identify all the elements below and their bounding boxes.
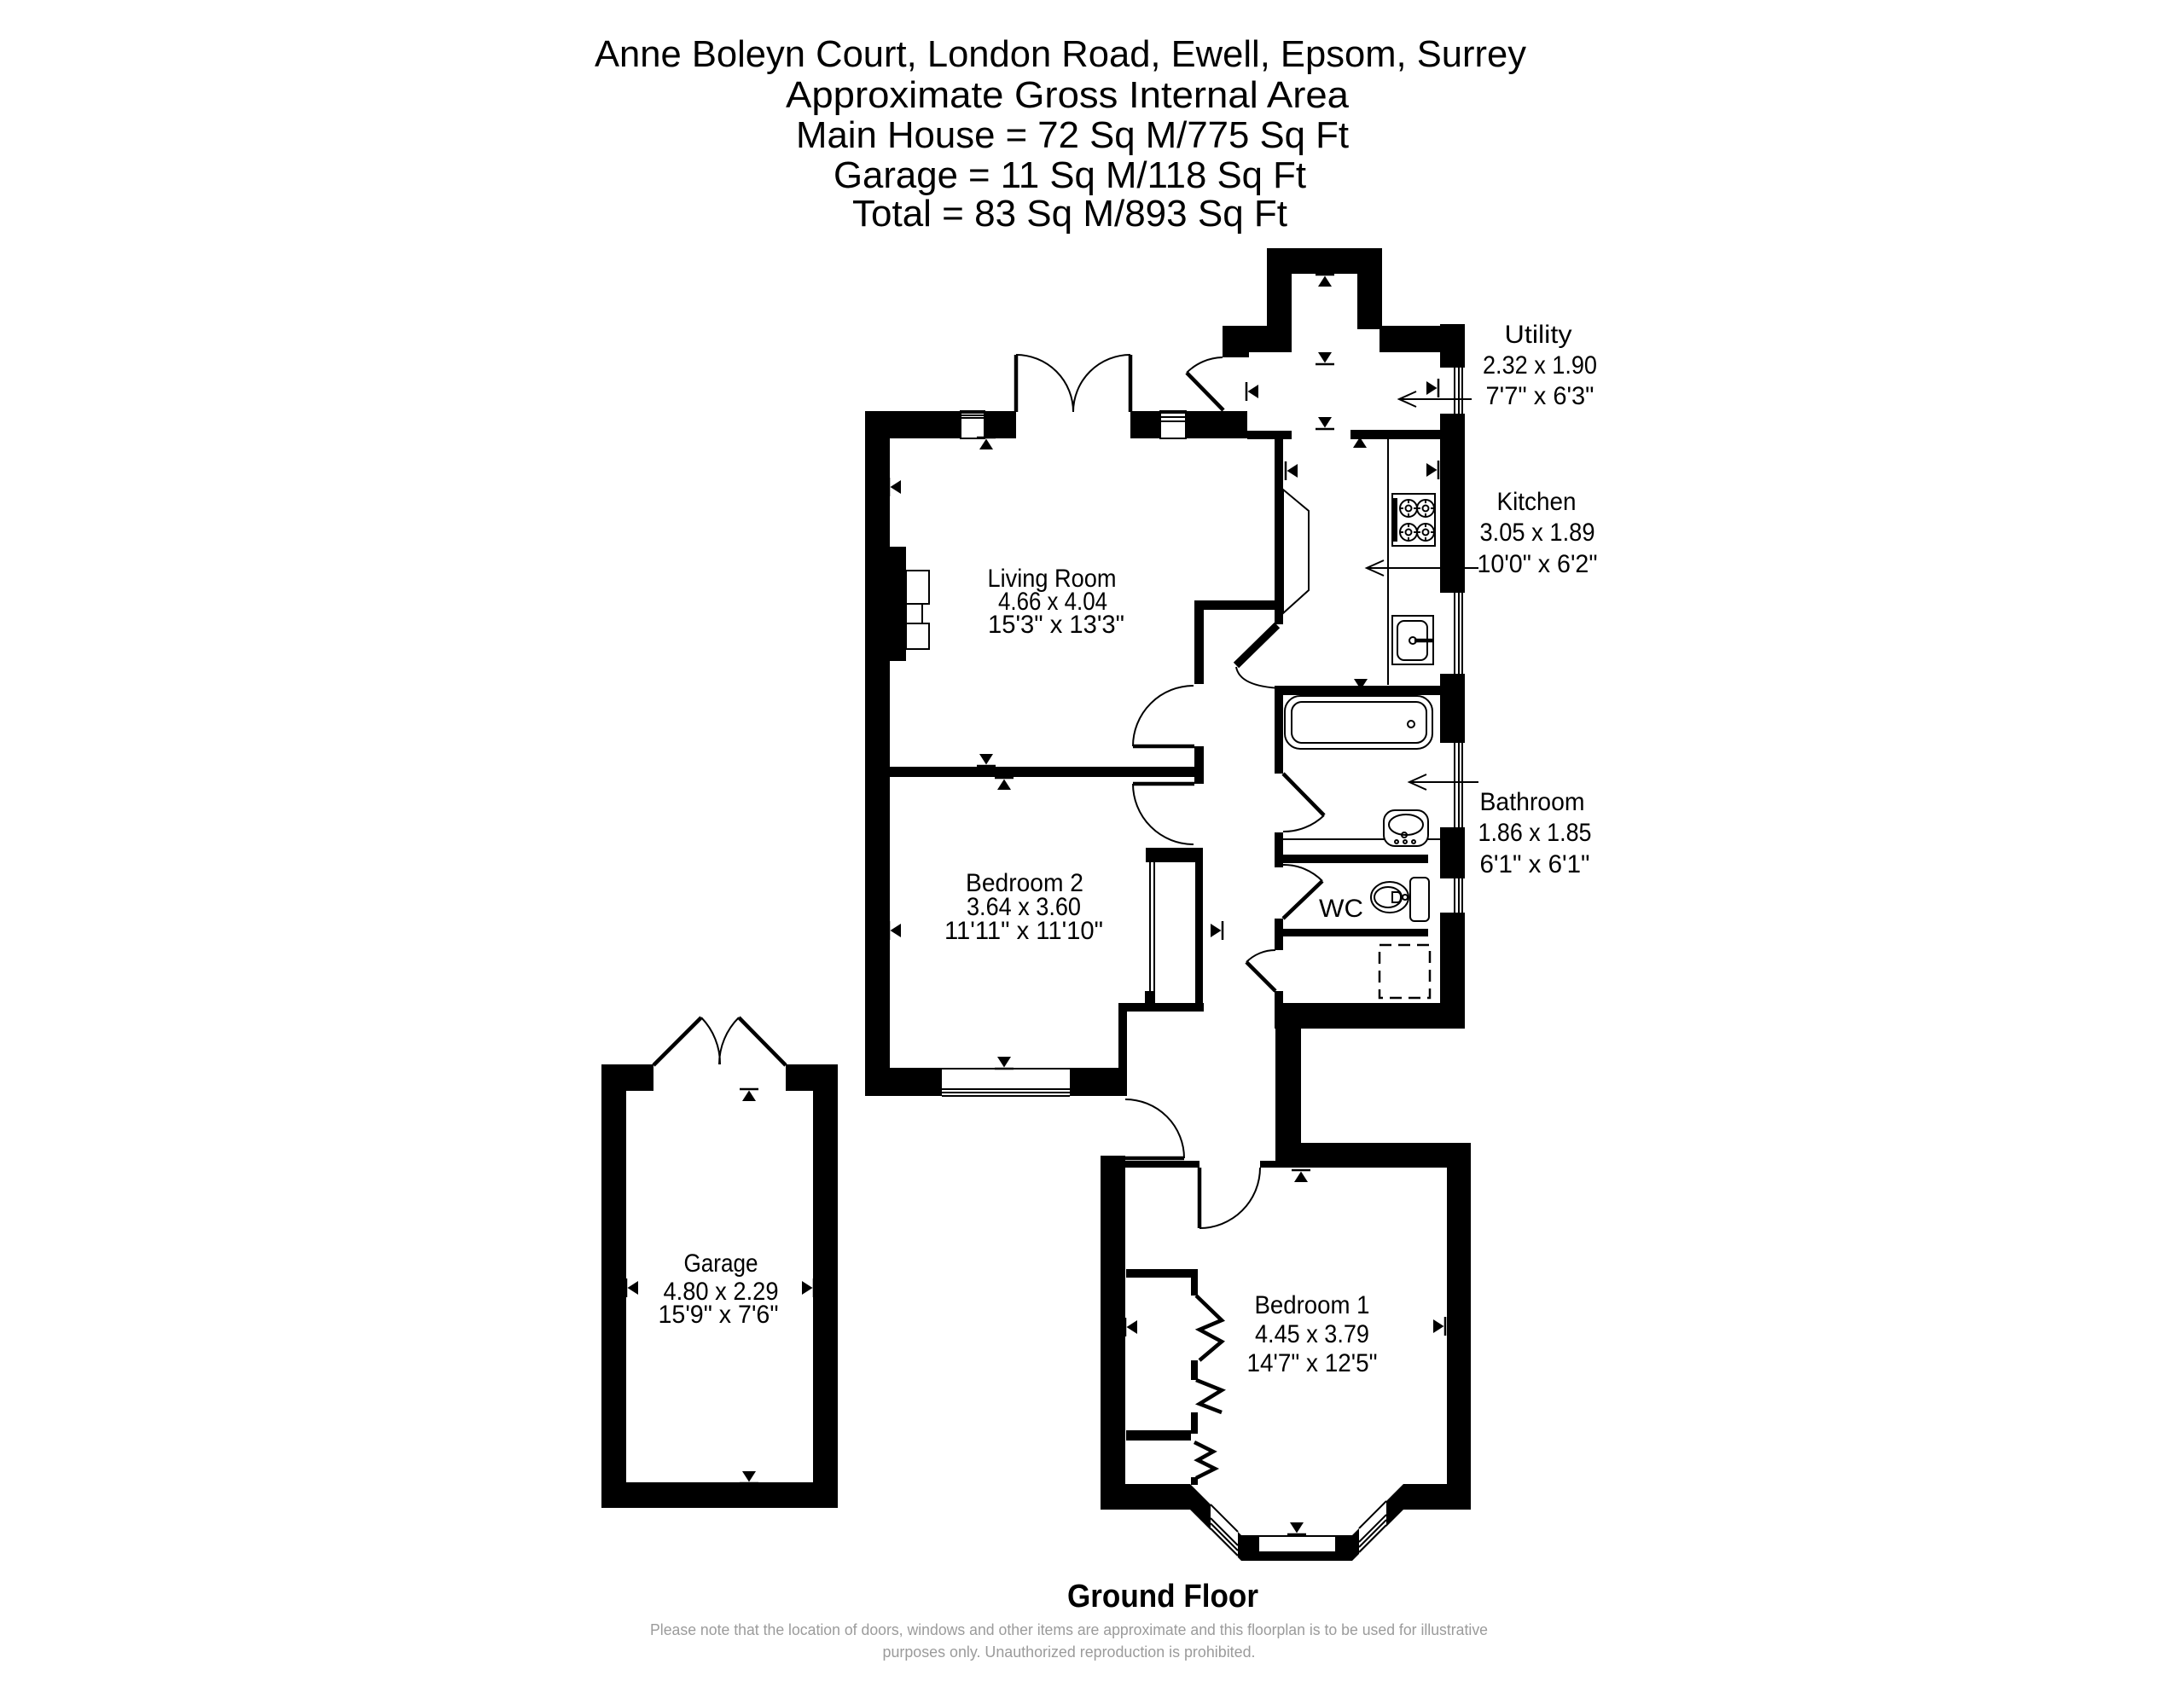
svg-text:7'7" x 6'3": 7'7" x 6'3" [1486,382,1594,410]
svg-text:Garage: Garage [684,1249,758,1278]
svg-text:Please note that the location: Please note that the location of doors, … [650,1621,1488,1638]
svg-text:15'3" x 13'3": 15'3" x 13'3" [988,611,1124,639]
svg-text:Kitchen: Kitchen [1497,488,1577,516]
svg-text:15'9" x 7'6": 15'9" x 7'6" [659,1301,779,1329]
svg-text:Total = 83 Sq M/893 Sq Ft: Total = 83 Sq M/893 Sq Ft [852,193,1287,235]
svg-text:1.86 x 1.85: 1.86 x 1.85 [1478,819,1592,847]
svg-text:Main House = 72 Sq M/775 Sq Ft: Main House = 72 Sq M/775 Sq Ft [796,114,1349,156]
svg-text:Anne Boleyn Court, London Road: Anne Boleyn Court, London Road, Ewell, E… [595,33,1526,75]
svg-text:Approximate Gross Internal Are: Approximate Gross Internal Area [786,74,1350,116]
svg-text:Ground Floor: Ground Floor [1067,1579,1258,1615]
svg-text:purposes only. Unauthorized re: purposes only. Unauthorized reproduction… [883,1644,1256,1661]
svg-text:4.45 x 3.79: 4.45 x 3.79 [1255,1320,1369,1348]
svg-text:2.32 x 1.90: 2.32 x 1.90 [1483,351,1597,380]
svg-text:11'11" x 11'10": 11'11" x 11'10" [944,917,1103,945]
svg-text:Utility: Utility [1505,321,1572,349]
svg-text:14'7" x 12'5": 14'7" x 12'5" [1247,1349,1378,1377]
svg-text:3.05 x 1.89: 3.05 x 1.89 [1480,519,1595,547]
svg-text:10'0" x 6'2": 10'0" x 6'2" [1478,550,1598,578]
svg-text:WC: WC [1319,895,1363,923]
svg-text:Bedroom 1: Bedroom 1 [1255,1291,1370,1319]
svg-text:Garage = 11 Sq M/118 Sq Ft: Garage = 11 Sq M/118 Sq Ft [834,154,1306,196]
svg-text:Bathroom: Bathroom [1480,788,1585,816]
svg-text:6'1" x 6'1": 6'1" x 6'1" [1480,850,1590,878]
